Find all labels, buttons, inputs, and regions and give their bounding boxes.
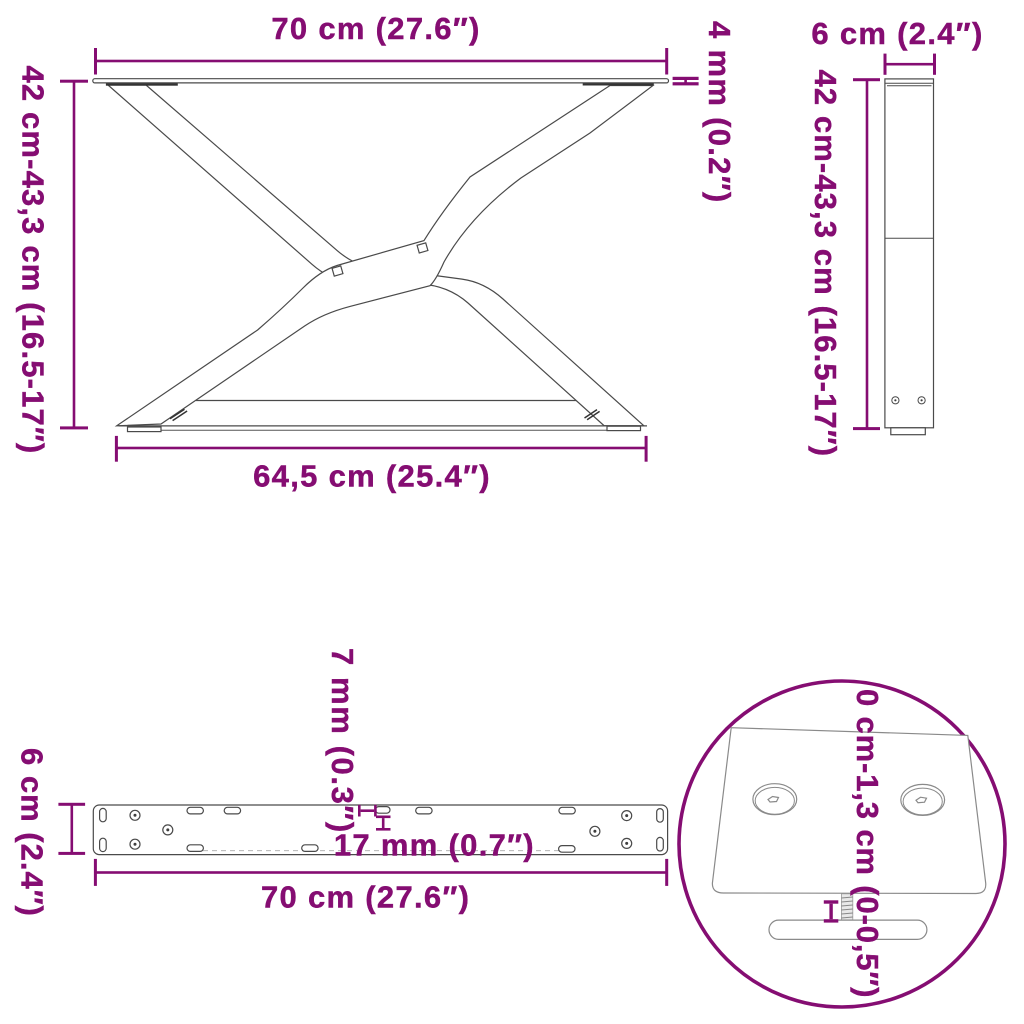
svg-text:42 cm-43,3 cm (16.5-17″): 42 cm-43,3 cm (16.5-17″) [808, 70, 843, 458]
svg-text:6 cm (2.4″): 6 cm (2.4″) [811, 16, 983, 51]
svg-text:6 cm (2.4″): 6 cm (2.4″) [15, 748, 50, 917]
svg-text:4 mm (0.2″): 4 mm (0.2″) [702, 21, 737, 203]
svg-text:64,5 cm (25.4″): 64,5 cm (25.4″) [253, 459, 491, 494]
svg-text:7 mm (0.3″): 7 mm (0.3″) [325, 648, 360, 834]
svg-text:0 cm-1,3 cm (0-0,5″): 0 cm-1,3 cm (0-0,5″) [850, 689, 885, 998]
svg-text:17 mm (0.7″): 17 mm (0.7″) [334, 828, 535, 863]
svg-text:70 cm (27.6″): 70 cm (27.6″) [261, 880, 470, 915]
svg-text:70 cm (27.6″): 70 cm (27.6″) [271, 11, 480, 46]
svg-text:42 cm-43,3 cm (16.5-17″): 42 cm-43,3 cm (16.5-17″) [16, 66, 51, 455]
